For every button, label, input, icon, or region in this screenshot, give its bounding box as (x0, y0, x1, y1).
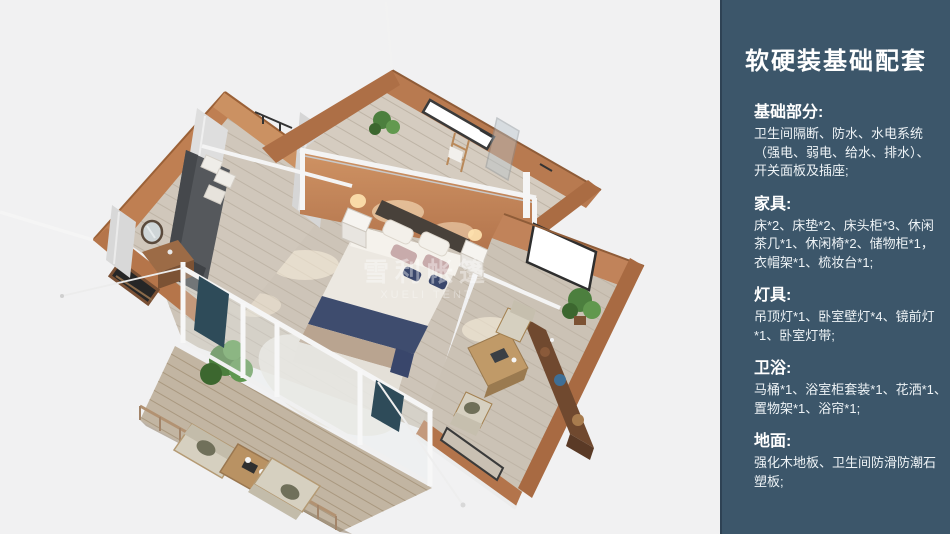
scene-illustration: 雪利帐篷 XUELI TENT (0, 0, 720, 534)
section-furniture: 家具: 床*2、床垫*2、床头柜*3、休闲 茶几*1、休闲椅*2、储物柜*1， … (754, 195, 946, 273)
deck-corner-post (132, 408, 138, 418)
spec-sections: 基础部分: 卫生间隔断、防水、水电系统 （强电、弱电、给水、排水）、 开关面板及… (722, 103, 950, 491)
frame-post (300, 150, 305, 210)
section-heading: 卫浴: (754, 359, 946, 379)
section-body: 吊顶灯*1、卧室壁灯*4、镜前灯 *1、卧室灯带; (754, 308, 946, 345)
section-body: 强化木地板、卫生间防滑防潮石 塑板; (754, 454, 946, 491)
round-mirror (142, 221, 162, 243)
slide-canvas: 雪利帐篷 XUELI TENT 软硬装基础配套 基础部分: 卫生间隔断、防水、水… (0, 0, 950, 534)
section-heading: 灯具: (754, 286, 946, 306)
frame-post (523, 172, 530, 218)
info-panel: 软硬装基础配套 基础部分: 卫生间隔断、防水、水电系统 （强电、弱电、给水、排水… (720, 0, 950, 534)
section-heading: 家具: (754, 195, 946, 215)
bedside-lamp (468, 229, 482, 241)
section-flooring: 地面: 强化木地板、卫生间防滑防潮石 塑板; (754, 432, 946, 491)
section-bathroom: 卫浴: 马桶*1、浴室柜套装*1、花洒*1、 置物架*1、浴帘*1; (754, 359, 946, 418)
panel-title: 软硬装基础配套 (722, 48, 950, 76)
tent-suite-isometric-render (0, 0, 720, 534)
section-body: 床*2、床垫*2、床头柜*3、休闲 茶几*1、休闲椅*2、储物柜*1， 衣帽架*… (754, 217, 946, 273)
section-heading: 地面: (754, 432, 946, 452)
bedside-lamp (350, 194, 366, 208)
section-body: 马桶*1、浴室柜套装*1、花洒*1、 置物架*1、浴帘*1; (754, 381, 946, 418)
section-lighting: 灯具: 吊顶灯*1、卧室壁灯*4、镜前灯 *1、卧室灯带; (754, 286, 946, 345)
section-basics: 基础部分: 卫生间隔断、防水、水电系统 （强电、弱电、给水、排水）、 开关面板及… (754, 103, 946, 181)
section-body: 卫生间隔断、防水、水电系统 （强电、弱电、给水、排水）、 开关面板及插座; (754, 125, 946, 181)
section-heading: 基础部分: (754, 103, 946, 123)
